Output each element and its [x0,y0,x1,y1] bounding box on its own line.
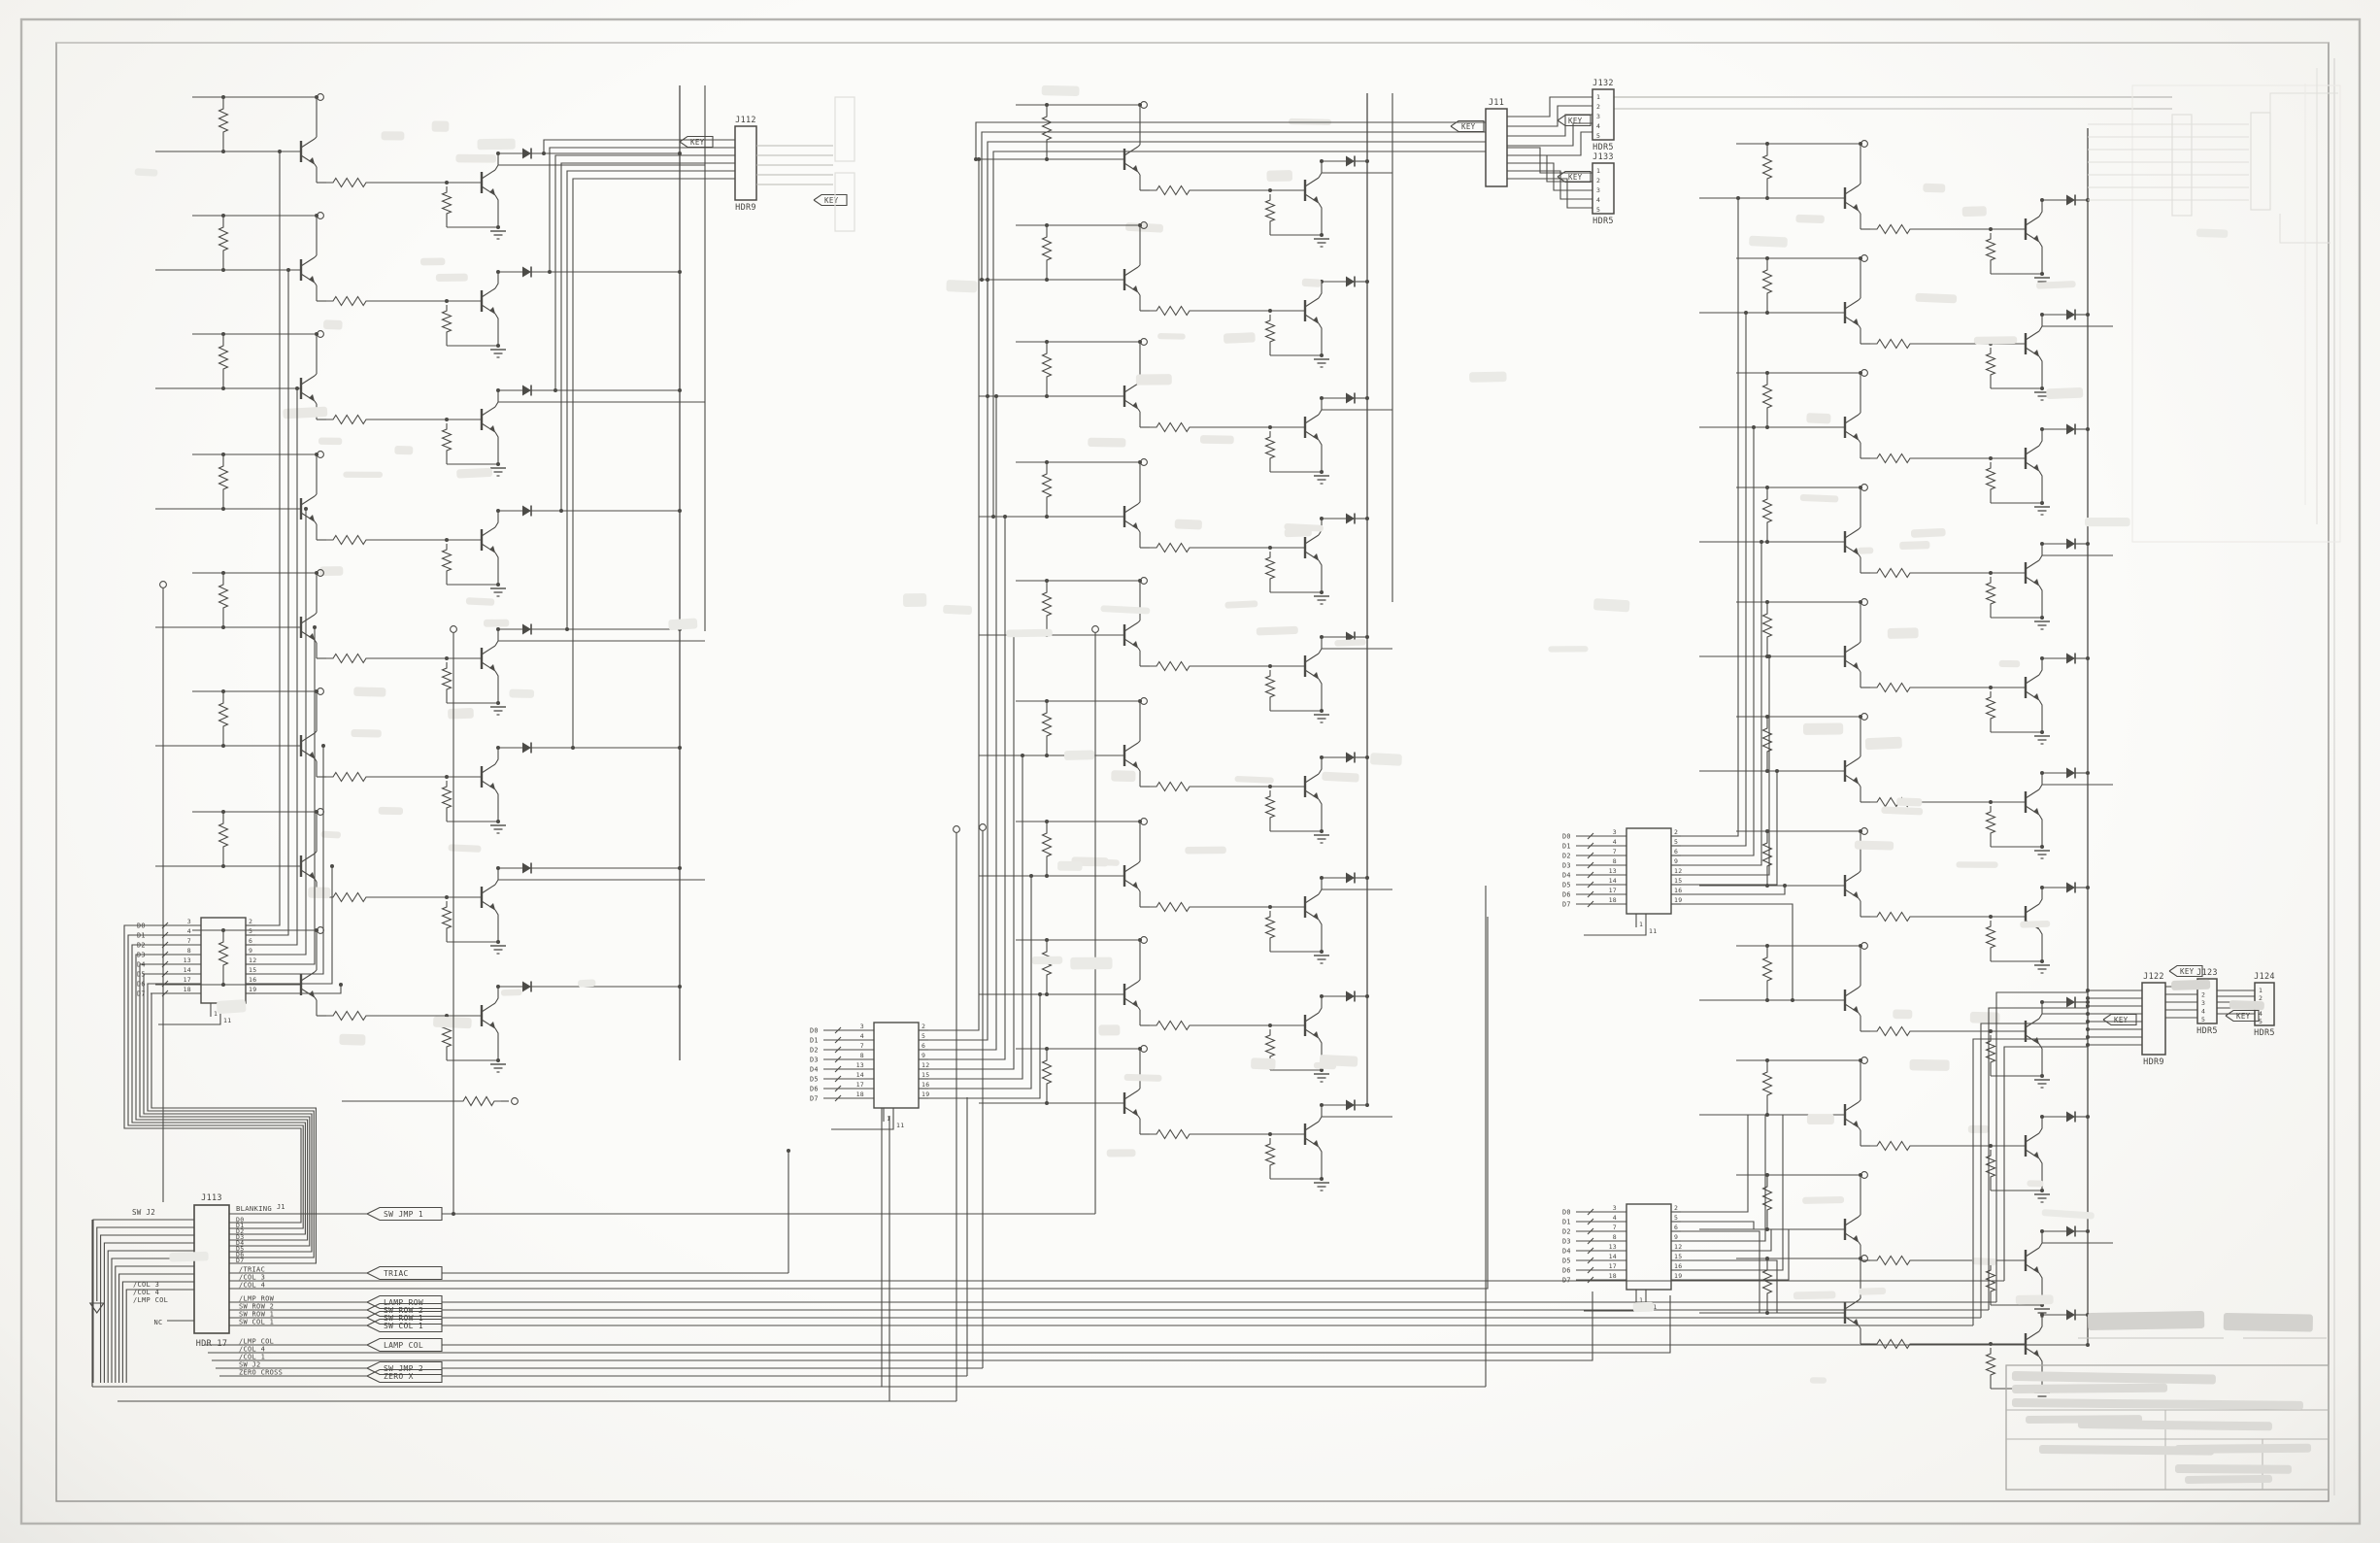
svg-text:8: 8 [1613,1233,1617,1241]
svg-text:18: 18 [856,1090,864,1098]
svg-text:ZERO X: ZERO X [384,1372,414,1381]
svg-text:19: 19 [1674,1272,1682,1280]
svg-text:5: 5 [922,1032,925,1040]
net-flag-sw-jmp-1: SW JMP 1 [367,1208,442,1221]
svg-text:14: 14 [1609,1253,1617,1260]
connector-j112: J112HDR9 [735,116,756,213]
svg-text:16: 16 [249,976,256,984]
svg-text:D6: D6 [810,1086,819,1093]
svg-text:/LMP ROW: /LMP ROW [239,1295,275,1303]
j122-wiring: KEYKEYKEY [2086,966,2264,1048]
svg-text:19: 19 [249,986,256,993]
svg-text:14: 14 [184,966,191,974]
svg-text:13: 13 [856,1061,864,1069]
title-block [2006,1311,2329,1490]
svg-text:ZERO CROSS: ZERO CROSS [239,1369,283,1377]
svg-text:2: 2 [249,918,252,925]
svg-text:D0: D0 [810,1027,819,1035]
svg-text:SW ROW 2: SW ROW 2 [239,1303,274,1311]
svg-text:D2: D2 [810,1047,819,1055]
svg-text:12: 12 [249,956,256,964]
j112-wiring: KEYKEY [542,97,855,750]
svg-text:13: 13 [1609,867,1617,875]
svg-text:4: 4 [2201,1008,2205,1016]
svg-text:J11: J11 [1489,98,1504,108]
svg-text:16: 16 [1674,1262,1682,1270]
svg-text:D4: D4 [1562,872,1571,880]
svg-text:D0: D0 [1562,833,1571,841]
key-flag: KEY [2103,1015,2136,1025]
svg-text:18: 18 [1609,896,1617,904]
svg-text:J132: J132 [1592,79,1614,88]
svg-text:19: 19 [1674,896,1682,904]
connector-j132: J132HDR512345 [1592,79,1614,152]
svg-text:3: 3 [1596,186,1600,194]
ghost-artifacts [135,68,2340,1312]
svg-text:15: 15 [1674,877,1682,885]
svg-text:11: 11 [223,1017,231,1024]
svg-text:SW JMP 1: SW JMP 1 [384,1210,423,1219]
svg-text:D0: D0 [1562,1209,1571,1217]
svg-text:D1: D1 [1562,843,1571,851]
svg-text:KEY: KEY [2180,967,2195,976]
key-flag: KEY [814,195,847,206]
svg-text:J112: J112 [735,116,756,125]
svg-text:16: 16 [922,1081,929,1089]
svg-text:7: 7 [860,1042,864,1050]
svg-text:12: 12 [1674,1243,1682,1251]
svg-text:SW COL 1: SW COL 1 [384,1322,423,1330]
svg-text:LAMP COL: LAMP COL [384,1341,423,1350]
svg-text:D2: D2 [1562,1228,1571,1236]
svg-text:SW COL 1: SW COL 1 [239,1319,274,1326]
svg-text:19: 19 [922,1090,929,1098]
svg-text:4: 4 [1613,838,1617,846]
svg-text:D3: D3 [1562,1238,1571,1246]
svg-text:5: 5 [2259,1018,2263,1025]
svg-text:HDR5: HDR5 [2254,1028,2275,1038]
svg-text:D4: D4 [1562,1248,1571,1256]
svg-text:3: 3 [860,1023,864,1030]
svg-text:2: 2 [1596,103,1600,111]
key-flag: KEY [680,137,713,148]
svg-text:/COL 3: /COL 3 [239,1274,265,1282]
svg-text:15: 15 [249,966,256,974]
svg-text:4: 4 [860,1032,864,1040]
svg-text:5: 5 [1674,838,1678,846]
svg-text:9: 9 [1674,857,1678,865]
svg-text:KEY: KEY [2236,1012,2251,1021]
svg-text:KEY: KEY [2114,1016,2129,1024]
svg-text:D5: D5 [810,1076,819,1084]
svg-text:17: 17 [1609,1262,1617,1270]
svg-text:D1: D1 [1562,1219,1571,1226]
svg-text:5: 5 [1596,206,1600,214]
svg-text:HDR5: HDR5 [1592,217,1614,226]
svg-text:NC: NC [153,1319,162,1326]
svg-text:D4: D4 [810,1066,819,1074]
svg-text:11: 11 [1649,927,1657,935]
svg-text:6: 6 [1674,1224,1678,1231]
svg-text:4: 4 [1596,122,1600,130]
svg-text:18: 18 [1609,1272,1617,1280]
svg-text:1: 1 [1596,167,1600,175]
svg-text:18: 18 [184,986,191,993]
svg-text:KEY: KEY [824,196,839,205]
svg-text:14: 14 [856,1071,864,1079]
svg-text:D7: D7 [236,1257,244,1264]
svg-text:2: 2 [1674,1204,1678,1212]
svg-text:4: 4 [2259,1010,2263,1018]
svg-text:J122: J122 [2143,972,2164,982]
svg-text:D3: D3 [810,1057,819,1064]
sheet-border [21,19,2360,1524]
svg-text:12: 12 [922,1061,929,1069]
latch-ic-4: 3D04D17D28D313D414D517D618D7256912151619… [1562,1204,1682,1311]
svg-text:D6: D6 [1562,1267,1571,1275]
svg-text:3: 3 [2201,999,2205,1007]
svg-text:KEY: KEY [1461,122,1476,131]
svg-text:TRIAC: TRIAC [384,1269,409,1278]
svg-text:3: 3 [1596,113,1600,120]
svg-text:6: 6 [1674,848,1678,855]
svg-text:/COL 4: /COL 4 [239,1346,265,1354]
svg-text:BLANKING: BLANKING [236,1204,272,1213]
svg-text:11: 11 [896,1122,904,1129]
svg-text:/LMP COL: /LMP COL [133,1296,168,1304]
net-flags: SW JMP 1TRIACLAMP ROWSW ROW 2SW ROW 1SW … [367,1208,442,1383]
svg-text:9: 9 [249,947,252,955]
svg-text:8: 8 [187,947,191,955]
svg-text:J124: J124 [2254,972,2275,982]
svg-text:2: 2 [2201,991,2205,999]
key-flag: KEY [1558,116,1591,126]
svg-text:HDR5: HDR5 [1592,143,1614,152]
svg-text:15: 15 [1674,1253,1682,1260]
svg-text:12: 12 [1674,867,1682,875]
svg-text:17: 17 [184,976,191,984]
connector-j122: J122HDR9 [2142,972,2165,1067]
connector-j11: J11 [1486,98,1507,186]
schematic-canvas: 3D04D17D28D313D414D517D618D7256912151619… [0,0,2380,1543]
svg-text:5: 5 [1596,132,1600,140]
j11-wiring: KEYKEYKEY [974,97,2172,519]
svg-text:2: 2 [1674,828,1678,836]
svg-text:D5: D5 [1562,882,1571,889]
svg-text:1: 1 [887,1115,890,1123]
svg-text:D3: D3 [1562,862,1571,870]
connector-j123: J123HDR512345 [2196,968,2218,1036]
svg-text:KEY: KEY [1568,117,1583,125]
svg-text:D5: D5 [1562,1258,1571,1265]
svg-text:HDR 17: HDR 17 [196,1339,228,1349]
middle-driver-column [979,93,1392,1191]
svg-text:9: 9 [922,1052,925,1059]
svg-text:7: 7 [1613,1224,1617,1231]
svg-text:13: 13 [1609,1243,1617,1251]
svg-text:3: 3 [1613,1204,1617,1212]
svg-text:3: 3 [1613,828,1617,836]
svg-text:/COL 1: /COL 1 [239,1354,265,1361]
svg-text:HDR5: HDR5 [2196,1026,2218,1036]
svg-text:5: 5 [2201,1016,2205,1023]
svg-text:SW ROW 1: SW ROW 1 [239,1311,274,1319]
svg-text:13: 13 [184,956,191,964]
svg-text:/TRIAC: /TRIAC [239,1266,265,1274]
svg-text:/LMP COL: /LMP COL [239,1338,274,1346]
left-driver-column [155,85,705,1072]
svg-text:KEY: KEY [1568,173,1583,182]
svg-text:15: 15 [922,1071,929,1079]
latch-ic-3: 3D04D17D28D313D414D517D618D7256912151619… [1562,828,1682,935]
svg-text:16: 16 [1674,887,1682,894]
svg-text:2: 2 [2259,994,2263,1002]
svg-text:4: 4 [187,927,191,935]
svg-text:D2: D2 [1562,853,1571,860]
svg-text:J1: J1 [277,1203,285,1211]
svg-text:7: 7 [187,937,191,945]
svg-text:J133: J133 [1592,152,1614,162]
svg-text:6: 6 [922,1042,925,1050]
net-flag-triac: TRIAC [367,1267,442,1280]
svg-text:D7: D7 [1562,901,1571,909]
svg-text:4: 4 [1596,196,1600,204]
svg-text:17: 17 [856,1081,864,1089]
svg-text:D1: D1 [810,1037,819,1045]
latch-ic-2: 3D04D17D28D313D414D517D618D7256912151619… [810,1023,929,1129]
svg-text:14: 14 [1609,877,1617,885]
svg-text:1: 1 [2259,987,2263,994]
net-flag-zero-x: ZERO X [367,1370,442,1383]
svg-text:SW J2: SW J2 [239,1361,261,1369]
svg-text:D7: D7 [810,1095,819,1103]
svg-text:2: 2 [1596,177,1600,184]
svg-text:D6: D6 [1562,891,1571,899]
svg-text:8: 8 [1613,857,1617,865]
svg-text:3: 3 [187,918,191,925]
svg-text:/COL 4: /COL 4 [133,1289,159,1296]
svg-text:2: 2 [922,1023,925,1030]
svg-text:J113: J113 [201,1193,222,1203]
svg-text:SW J2: SW J2 [132,1208,155,1217]
svg-text:HDR9: HDR9 [2143,1057,2164,1067]
svg-text:5: 5 [1674,1214,1678,1222]
svg-text:HDR9: HDR9 [735,203,756,213]
svg-text:4: 4 [1613,1214,1617,1222]
svg-text:1: 1 [1596,93,1600,101]
svg-text:KEY: KEY [690,138,705,147]
svg-text:/COL 3: /COL 3 [133,1281,159,1289]
svg-text:5: 5 [249,927,252,935]
net-flag-lamp-col: LAMP COL [367,1339,442,1352]
svg-text:8: 8 [860,1052,864,1059]
svg-text:9: 9 [1674,1233,1678,1241]
net-flag-sw-col-1: SW COL 1 [367,1320,442,1332]
key-flag: KEY [2226,1011,2259,1022]
svg-text:/COL 4: /COL 4 [239,1282,265,1290]
svg-text:7: 7 [1613,848,1617,855]
svg-text:17: 17 [1609,887,1617,894]
svg-text:6: 6 [249,937,252,945]
bottom-bus-lines [92,626,2090,1401]
connector-j133: J133HDR512345 [1592,152,1614,226]
svg-text:1: 1 [1639,921,1643,928]
schematic-sheet: 3D04D17D28D313D414D517D618D7256912151619… [0,0,2380,1543]
